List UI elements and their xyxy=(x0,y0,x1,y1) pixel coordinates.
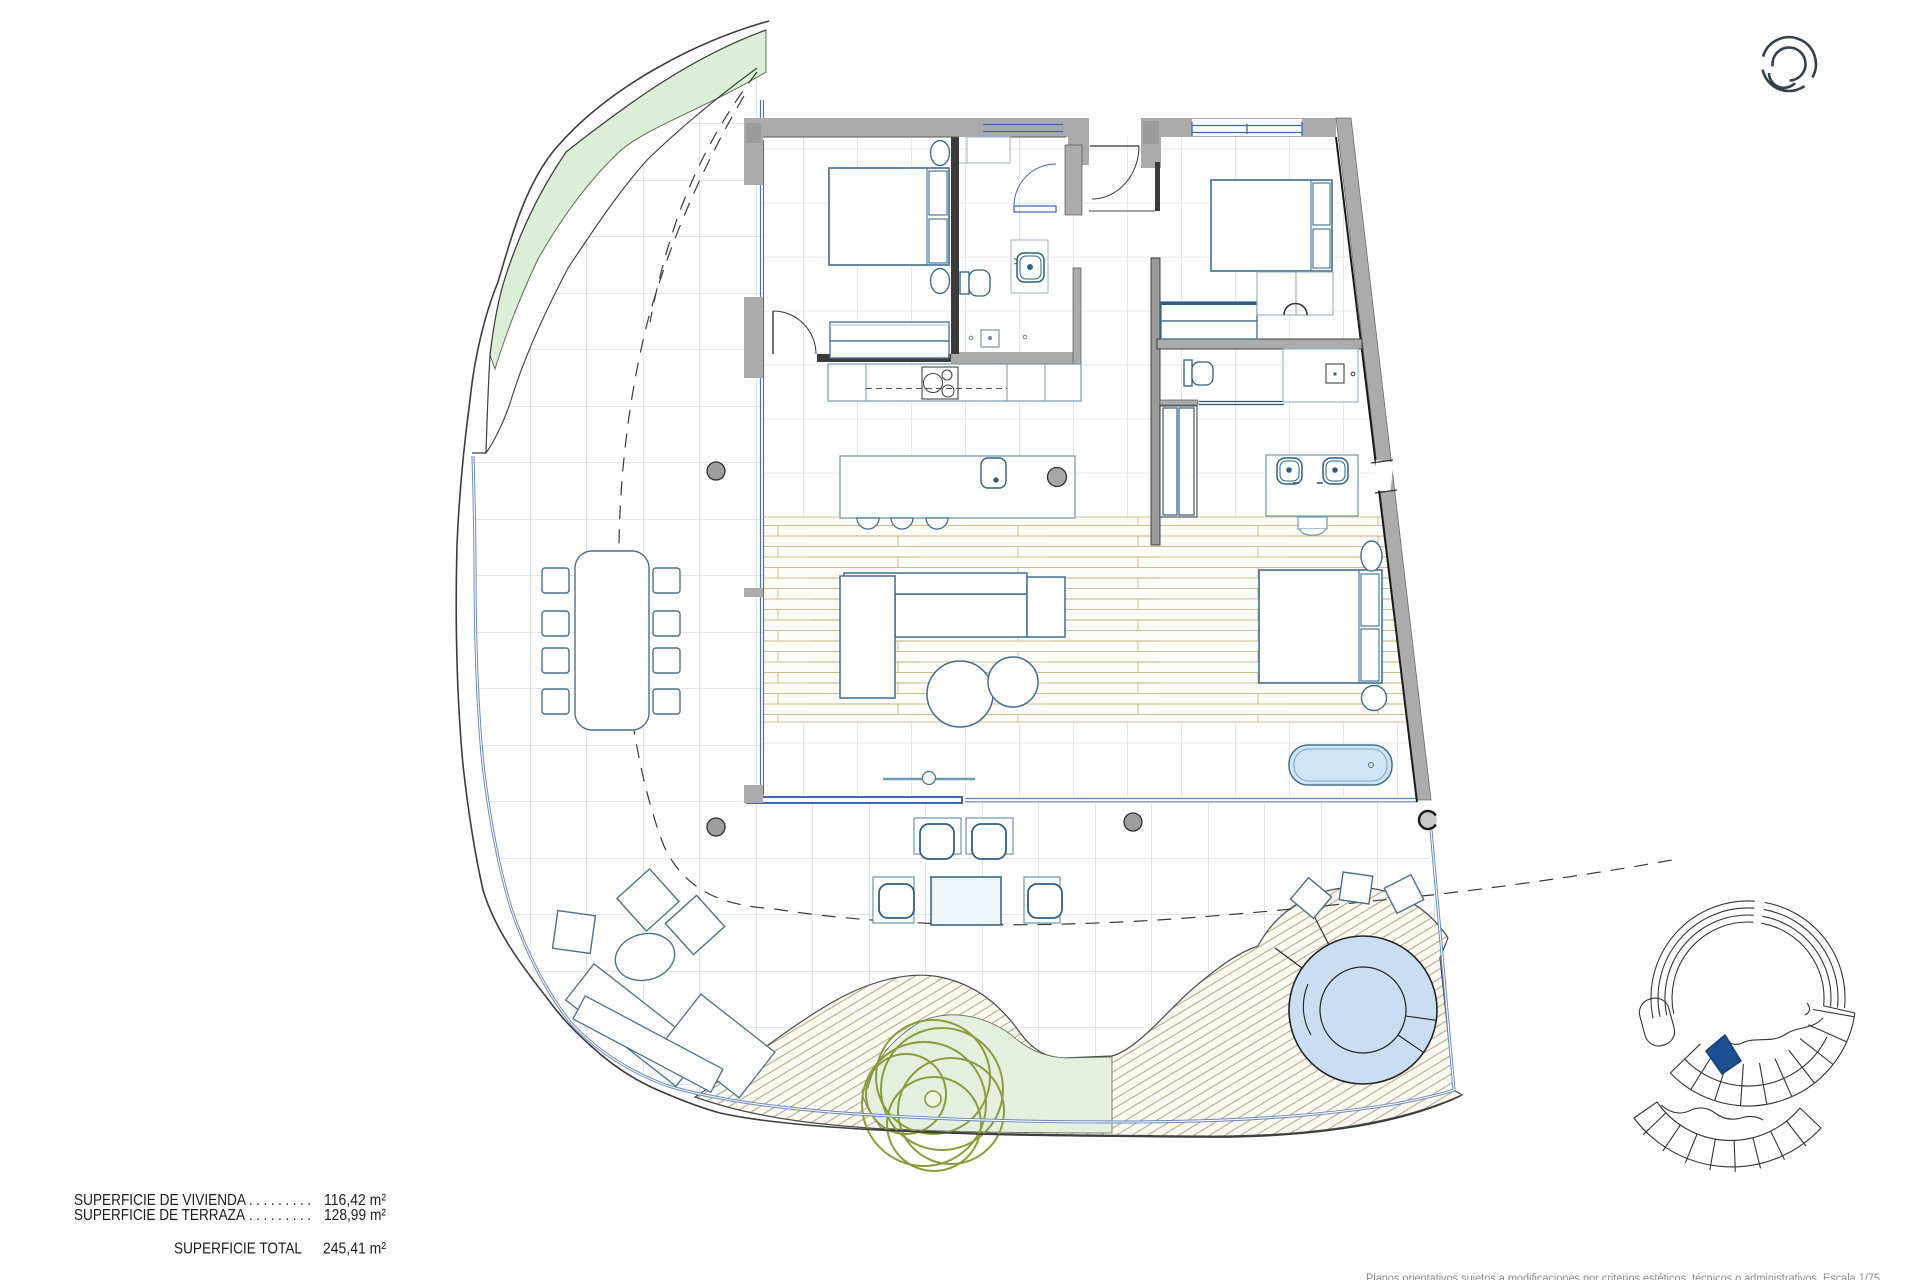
svg-text:128,99 m²: 128,99 m² xyxy=(324,1207,387,1224)
svg-text:Planos orientativos sujetos a: Planos orientativos sujetos a modificaci… xyxy=(1366,1273,1880,1280)
svg-text:SUPERFICIE TOTAL: SUPERFICIE TOTAL xyxy=(174,1241,302,1258)
svg-text:SUPERFICIE DE TERRAZA: SUPERFICIE DE TERRAZA xyxy=(74,1207,245,1224)
svg-text:. . . . . . . . .: . . . . . . . . . xyxy=(249,1207,311,1224)
svg-text:245,41 m²: 245,41 m² xyxy=(323,1241,387,1258)
